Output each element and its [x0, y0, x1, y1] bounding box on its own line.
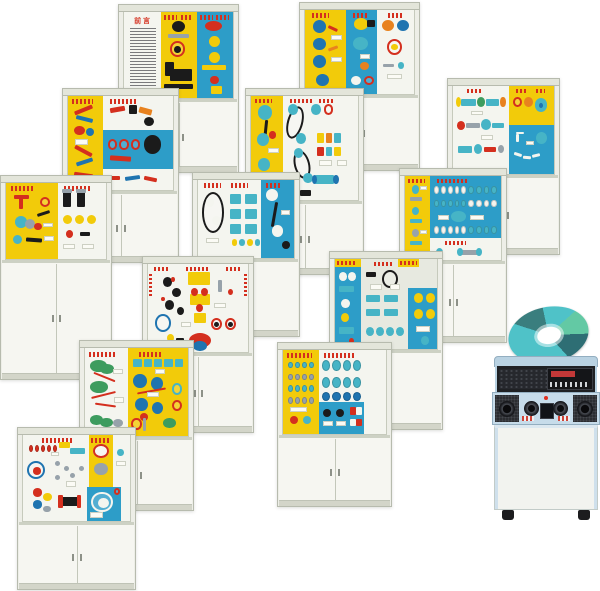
part-disc	[94, 463, 108, 476]
part-bar	[19, 195, 23, 209]
part-disc	[351, 76, 361, 85]
left-dial	[524, 401, 539, 416]
part-disc	[174, 46, 181, 53]
caption-strip	[186, 267, 210, 271]
part-bar	[77, 192, 85, 207]
caption-strip	[536, 89, 545, 93]
part-ring	[364, 76, 374, 85]
part-disc	[296, 133, 306, 143]
part-disc	[79, 466, 84, 471]
caption-strip	[312, 13, 329, 17]
part-disc	[193, 341, 207, 352]
part-disc	[133, 374, 146, 388]
caption-strip	[319, 99, 334, 103]
cabinet-top-rail	[330, 252, 442, 259]
part-ring	[119, 139, 128, 149]
switch-cluster-left	[522, 416, 534, 421]
machine-parts-cabinet	[17, 427, 136, 590]
door-handle	[507, 212, 509, 219]
label-card	[43, 223, 53, 228]
right-speaker	[573, 395, 597, 422]
parts-row	[288, 362, 314, 369]
part-bar	[80, 232, 90, 237]
console-foot	[502, 510, 514, 520]
cabinet-top-rail	[18, 428, 135, 435]
part-bar	[383, 64, 394, 67]
label-card	[206, 238, 219, 243]
foreword-title: 前言	[128, 17, 158, 25]
part-bar	[384, 295, 398, 302]
sliding-door-edge	[198, 357, 199, 427]
part-disc	[500, 97, 505, 107]
door-handle	[80, 554, 82, 561]
caption-strip	[445, 241, 466, 245]
parts-row	[322, 360, 361, 371]
display-window	[282, 350, 387, 435]
foreword-text-block: 前言	[127, 16, 159, 93]
part-disc	[339, 272, 347, 281]
part-bar	[230, 209, 242, 219]
cabinet-top-rail	[400, 169, 506, 176]
display-panel	[103, 130, 173, 169]
part-disc	[210, 76, 219, 85]
part-disc	[336, 409, 344, 417]
part-disc	[303, 416, 311, 424]
caption-strip	[266, 183, 281, 188]
part-disc	[209, 52, 220, 63]
part-bar	[334, 133, 340, 142]
part-disc	[398, 62, 405, 69]
label-card	[390, 284, 400, 289]
door-handle	[308, 236, 310, 243]
part-ring	[40, 197, 50, 207]
door-handle	[116, 225, 118, 232]
speaker-cone-icon	[577, 401, 593, 417]
switch-cluster-right	[558, 416, 570, 421]
part-bar	[70, 448, 85, 454]
part-disc	[34, 223, 42, 231]
part-ring	[172, 383, 182, 394]
part-disc	[397, 20, 409, 31]
door-handle	[182, 134, 184, 141]
console-side-bezel	[495, 428, 498, 509]
caption-strip	[11, 186, 33, 191]
part-bar	[315, 175, 334, 184]
door-handle	[330, 469, 332, 476]
label-card	[481, 135, 493, 139]
door-handle	[72, 554, 74, 561]
part-disc	[239, 239, 245, 245]
part-bar	[339, 286, 354, 292]
caption-strip	[353, 13, 368, 17]
part-disc	[333, 175, 338, 184]
sliding-door-edge	[56, 264, 57, 374]
part-disc	[117, 449, 123, 456]
part-disc	[144, 117, 155, 126]
part-bar	[59, 442, 70, 448]
part-disc	[66, 230, 73, 238]
sliding-door-edge	[137, 441, 138, 505]
parts-row	[468, 186, 497, 194]
caption-strip	[290, 99, 314, 103]
storage-cabinet	[279, 435, 390, 506]
caption-strip	[516, 89, 526, 93]
part-ring	[324, 104, 334, 114]
part-bar	[366, 309, 380, 316]
valves-and-fittings-cabinet	[277, 342, 392, 507]
part-disc	[457, 248, 463, 256]
caption-strip	[91, 438, 110, 442]
part-disc	[311, 104, 321, 114]
sliding-door-edge	[453, 265, 454, 337]
caption-strip	[154, 267, 168, 271]
part-disc	[313, 38, 326, 51]
part-disc	[313, 55, 326, 68]
cabinet-top-rail	[80, 341, 193, 348]
caption-strip	[408, 179, 425, 183]
part-bar	[516, 134, 519, 143]
caption-strip-vertical	[149, 273, 152, 296]
part-disc	[172, 21, 185, 32]
cabinet-top-rail	[143, 257, 253, 264]
part-disc	[524, 97, 533, 108]
caption-strip	[337, 261, 355, 266]
part-bar	[164, 359, 172, 368]
label-card	[370, 284, 382, 289]
sliding-door-edge	[121, 195, 122, 257]
audio-deck-panel	[495, 364, 597, 392]
label-card	[147, 392, 159, 397]
cabinet-top-rail	[63, 89, 178, 96]
part-disc	[426, 293, 435, 303]
display-window	[22, 435, 131, 522]
label-card	[113, 369, 123, 374]
part-disc	[255, 239, 261, 245]
cabinet-top-rail	[246, 89, 363, 96]
part-disc	[191, 288, 198, 296]
parts-row	[288, 397, 314, 404]
label-card	[323, 421, 333, 427]
display-window	[334, 259, 438, 350]
part-ring	[513, 97, 522, 108]
sliding-door-edge	[305, 205, 306, 269]
part-disc	[288, 104, 298, 114]
parts-row	[322, 377, 361, 388]
part-bar	[170, 69, 192, 81]
part-disc	[414, 309, 423, 319]
part-bar	[334, 147, 340, 156]
part-bar	[63, 192, 71, 207]
caption-strip	[110, 99, 137, 104]
caption-strip	[181, 15, 192, 19]
power-led	[544, 396, 548, 400]
label-card	[360, 54, 371, 59]
part-disc	[536, 132, 547, 144]
display-window	[404, 176, 502, 261]
label-card	[416, 326, 430, 332]
display-panel	[335, 267, 361, 349]
door-handle	[59, 315, 61, 322]
caption-strip	[139, 352, 162, 357]
storage-cabinet	[19, 522, 134, 589]
part-bar	[326, 133, 332, 142]
part-bar	[516, 132, 524, 135]
label-card	[66, 481, 77, 486]
caption-strip	[226, 267, 240, 271]
part-bar	[175, 359, 183, 368]
parts-row	[29, 445, 57, 452]
stereo-deck	[547, 368, 593, 390]
label-card	[387, 74, 402, 79]
part-disc	[87, 215, 96, 224]
part-bar	[384, 309, 398, 316]
part-disc	[205, 21, 222, 31]
cabinet-top-rail	[193, 173, 299, 180]
part-disc	[412, 185, 420, 193]
part-bar	[168, 34, 190, 37]
label-card	[470, 215, 483, 220]
caption-strip	[164, 15, 177, 19]
deck-buttons	[550, 382, 590, 387]
label-card	[420, 230, 427, 234]
door-handle	[338, 469, 340, 476]
part-bar	[58, 495, 62, 508]
part-disc	[313, 20, 326, 33]
part-disc	[266, 189, 278, 201]
cabinet-top-rail	[119, 5, 238, 12]
part-ring	[93, 444, 109, 459]
display-panel	[89, 435, 113, 487]
parts-row	[434, 200, 467, 208]
door-handle	[456, 299, 458, 306]
part-bar	[356, 419, 362, 427]
part-bar	[317, 133, 323, 142]
part-disc	[100, 418, 112, 428]
caption-strip	[200, 15, 213, 19]
part-disc	[163, 418, 175, 428]
label-card	[268, 148, 279, 153]
part-disc	[539, 103, 543, 108]
console-body	[494, 425, 598, 510]
label-card	[526, 141, 534, 145]
display-window	[304, 10, 415, 95]
part-bar	[60, 497, 77, 506]
part-disc	[282, 241, 290, 249]
foreword-body-lines	[130, 28, 156, 91]
label-card	[281, 210, 291, 215]
part-bar	[466, 123, 480, 128]
part-ring	[131, 139, 140, 149]
cabinet-top-rail	[448, 79, 559, 86]
part-bar	[245, 194, 257, 204]
cabinet-plinth	[19, 583, 134, 589]
display-window	[197, 180, 295, 259]
cabinet-top-rail	[300, 3, 419, 10]
label-card	[319, 160, 332, 165]
caption-strip	[287, 353, 312, 358]
part-disc	[348, 272, 356, 281]
parts-row	[288, 374, 314, 381]
part-bar	[154, 359, 162, 368]
part-bar	[461, 99, 476, 106]
part-bar	[492, 123, 504, 128]
label-card	[471, 111, 483, 115]
part-bar	[366, 272, 376, 277]
label-card	[337, 160, 348, 165]
door-handle	[52, 315, 54, 322]
part-disc	[476, 248, 482, 256]
part-bar	[486, 99, 499, 106]
cabinet-plinth	[279, 500, 390, 506]
caption-strip	[437, 179, 468, 183]
door-handle	[300, 236, 302, 243]
caption-strip	[467, 89, 481, 93]
label-card	[114, 397, 124, 402]
part-disc	[90, 381, 108, 392]
deck-display	[551, 371, 575, 377]
parts-row	[434, 186, 467, 194]
part-bar	[317, 147, 323, 156]
part-disc	[269, 131, 275, 138]
part-bar	[230, 224, 242, 234]
part-bar	[245, 209, 257, 219]
part-disc	[206, 197, 215, 206]
part-bar	[367, 20, 375, 27]
label-card	[116, 461, 126, 466]
part-disc	[43, 506, 50, 513]
caption-strip	[204, 183, 221, 188]
console-foot	[578, 510, 590, 520]
part-disc	[161, 297, 165, 301]
part-bar	[230, 194, 242, 204]
part-bar	[300, 190, 311, 196]
label-card	[82, 244, 94, 249]
sliding-door-edge	[335, 439, 336, 501]
caption-strip-vertical	[244, 273, 247, 296]
part-bar	[356, 407, 362, 415]
amplifier-unit	[499, 369, 549, 389]
parts-row	[468, 226, 497, 234]
part-bar	[144, 359, 152, 368]
control-console	[492, 356, 600, 520]
label-card	[331, 57, 342, 62]
center-module	[540, 403, 554, 419]
label-card	[420, 186, 427, 190]
part-ring	[108, 139, 117, 149]
label-card	[181, 322, 191, 327]
part-disc	[171, 277, 175, 281]
part-bar	[129, 105, 137, 113]
part-disc	[75, 215, 84, 224]
part-disc	[366, 327, 374, 336]
label-card	[63, 244, 75, 249]
part-disc	[396, 327, 404, 336]
part-disc	[177, 307, 184, 315]
part-disc	[13, 235, 22, 244]
part-bar	[484, 147, 496, 152]
part-disc	[33, 467, 42, 475]
caption-strip	[72, 99, 93, 104]
label-card	[51, 452, 60, 456]
right-dial	[553, 401, 568, 416]
parts-row	[288, 385, 314, 392]
part-disc	[33, 500, 43, 509]
part-bar	[458, 146, 472, 153]
door-handle	[449, 299, 451, 306]
part-disc	[247, 239, 253, 245]
label-card	[214, 303, 226, 308]
part-bar	[211, 86, 222, 94]
door-handle	[140, 472, 142, 479]
parts-row	[434, 226, 467, 234]
caption-strip	[374, 262, 394, 267]
part-bar	[194, 313, 206, 323]
part-bar	[76, 189, 86, 193]
display-window	[452, 86, 555, 175]
cabinet-top-rail	[1, 176, 111, 183]
product-montage: 前言	[0, 0, 600, 591]
part-disc	[33, 488, 43, 497]
part-bar	[188, 272, 210, 285]
caption-strip	[324, 353, 355, 358]
console-side-bezel	[594, 428, 597, 509]
part-disc	[391, 44, 398, 50]
display-window	[84, 348, 189, 437]
part-disc	[63, 215, 72, 224]
part-bar	[410, 219, 422, 223]
speaker-cone-icon	[499, 401, 515, 417]
part-disc	[165, 300, 174, 310]
part-disc	[201, 288, 208, 296]
part-ring	[155, 314, 171, 332]
caption-strip	[216, 15, 229, 19]
label-card	[155, 369, 165, 373]
part-disc	[98, 498, 109, 508]
part-bar	[202, 65, 226, 70]
label-card	[438, 215, 450, 220]
part-bar	[339, 327, 354, 333]
part-bar	[143, 418, 146, 430]
door-handle	[201, 390, 203, 397]
part-bar	[77, 495, 81, 508]
label-card	[75, 139, 88, 145]
part-bar	[133, 359, 141, 368]
door-handle	[124, 225, 126, 232]
label-card	[331, 35, 342, 40]
part-bar	[62, 189, 72, 193]
caption-strip	[231, 183, 248, 188]
label-card	[90, 512, 103, 518]
parts-row	[322, 392, 361, 401]
part-disc	[414, 293, 423, 303]
part-bar	[366, 295, 380, 302]
part-disc	[376, 327, 384, 336]
caption-strip	[89, 352, 116, 357]
caption-strip	[400, 261, 416, 266]
console-control-panel	[492, 392, 600, 425]
label-card	[336, 421, 346, 427]
sliding-door-edge	[77, 526, 78, 584]
part-bar	[218, 280, 222, 292]
part-disc	[232, 239, 238, 245]
part-disc	[100, 364, 113, 374]
display-window	[5, 183, 107, 260]
part-bar	[245, 224, 257, 234]
left-speaker	[495, 395, 519, 422]
caption-strip	[388, 13, 403, 17]
display-panel	[364, 350, 386, 434]
parts-row	[468, 200, 497, 208]
